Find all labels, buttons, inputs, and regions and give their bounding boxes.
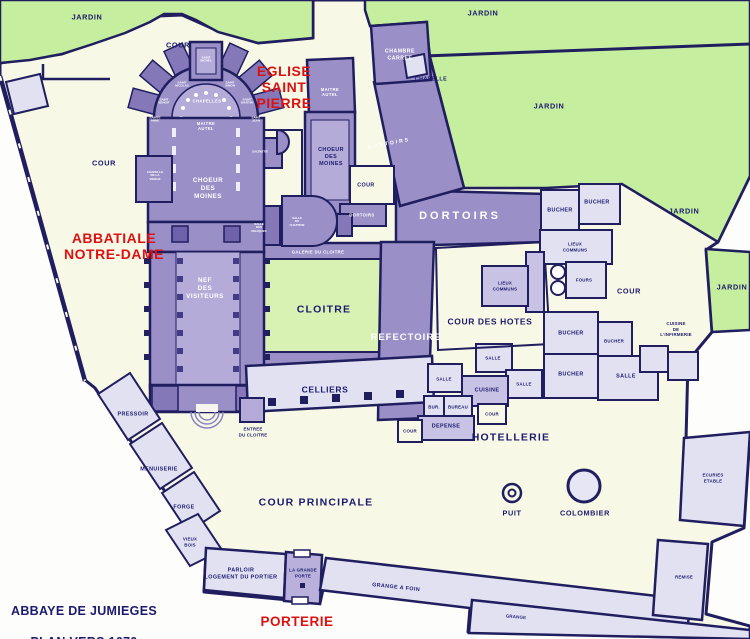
well-icon [503, 484, 521, 502]
gate-opening-south [292, 597, 308, 604]
depense-room [418, 416, 474, 440]
bucher-4-room [598, 322, 632, 358]
chapel-north-building [404, 54, 427, 78]
cour-pocket-2 [398, 420, 422, 442]
bucher-1-room [541, 190, 579, 230]
oven-icon [551, 265, 565, 279]
garden-southeast [706, 249, 750, 332]
lady-chapel [136, 156, 172, 202]
northwest-outbuilding [6, 74, 48, 114]
gate-mark [300, 583, 305, 588]
west-tower-north [152, 386, 178, 411]
west-portal-gap [196, 404, 218, 412]
crossing-pier-west [172, 226, 188, 242]
chapter-house-building [282, 196, 337, 246]
nave-central-vessel [176, 252, 240, 388]
saint-pierre-court [350, 166, 394, 204]
ecuries-building [680, 432, 750, 526]
saint-pierre-nave-inner [311, 120, 349, 200]
salle-3-room [506, 370, 542, 398]
plan-drawing [0, 0, 750, 639]
axial-tower-inner [196, 48, 216, 74]
fours-room [566, 262, 606, 298]
parloir-building [204, 548, 286, 598]
infirmary-kitchen-room-b [668, 352, 698, 380]
transept [148, 222, 264, 252]
bucher-5-room [544, 354, 598, 398]
cour-pocket-1 [478, 404, 506, 424]
bureau-room [444, 396, 472, 418]
bucher-3-room [544, 312, 598, 354]
cloister-lawn [262, 259, 384, 352]
salle-2-room [428, 364, 462, 392]
remise-building [653, 540, 708, 620]
dovecote-icon [568, 470, 600, 502]
abbey-plan-map: JARDIN COUR JARDIN JARDIN JARDIN JARDIN … [0, 0, 750, 639]
saint-pierre-pier-east [337, 214, 352, 236]
oven-icon [551, 281, 565, 295]
crossing-pier-east [224, 226, 240, 242]
cloister-entrance-porch [240, 398, 264, 422]
bucher-2-room [579, 184, 620, 224]
gate-opening-north [294, 550, 310, 557]
grande-porte-building [284, 552, 322, 604]
infirmary-kitchen-room-a [640, 346, 668, 372]
lieux-communs-west-room [482, 266, 528, 306]
bur-room [424, 396, 444, 418]
lieux-communs-east-room [540, 230, 612, 264]
saint-pierre-tower [307, 58, 355, 114]
